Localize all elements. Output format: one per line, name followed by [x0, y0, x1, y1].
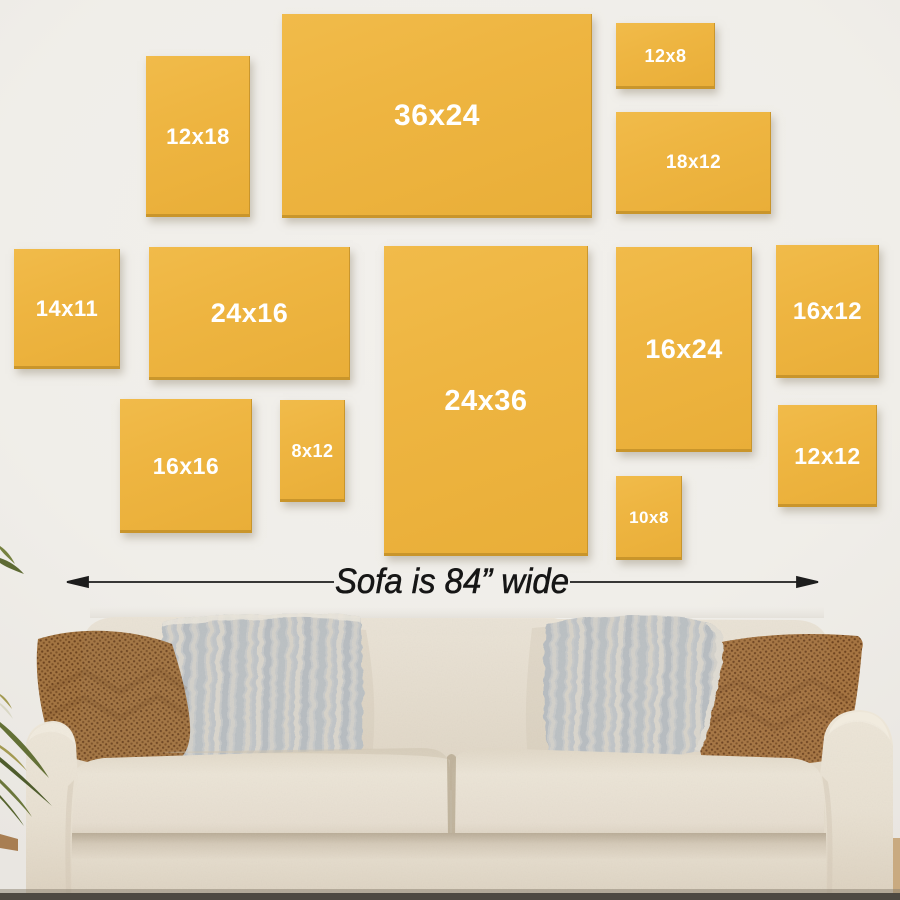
- svg-text:Sofa is 84” wide: Sofa is 84” wide: [335, 562, 569, 601]
